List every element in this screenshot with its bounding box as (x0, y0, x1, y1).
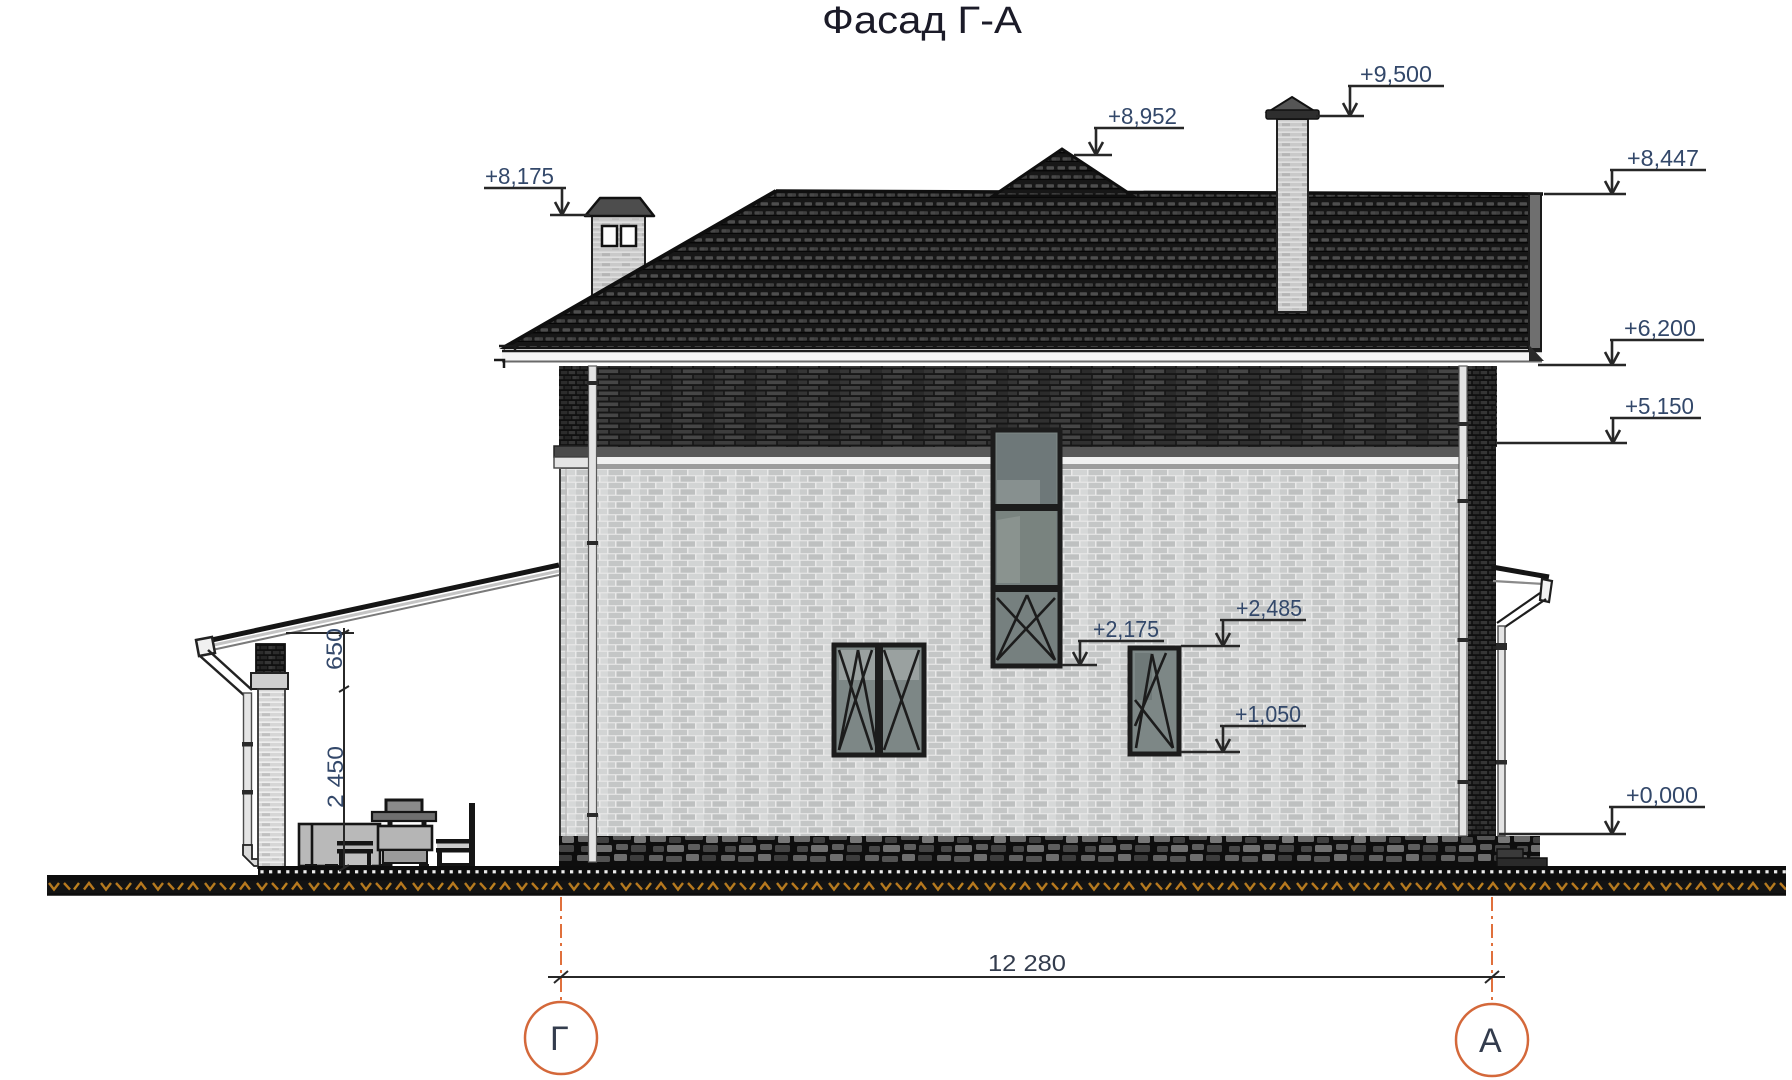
svg-text:+0,000: +0,000 (1626, 782, 1698, 808)
svg-text:+8,175: +8,175 (485, 163, 554, 189)
svg-text:+1,050: +1,050 (1235, 701, 1301, 727)
svg-text:Г: Г (550, 1020, 568, 1058)
svg-text:А: А (1479, 1022, 1502, 1060)
svg-text:+2,485: +2,485 (1236, 595, 1302, 621)
svg-text:+6,200: +6,200 (1624, 315, 1696, 341)
svg-text:Фасад Г-А: Фасад Г-А (822, 0, 1023, 42)
svg-text:+8,447: +8,447 (1627, 145, 1699, 171)
svg-text:2 450: 2 450 (323, 746, 348, 808)
svg-text:+9,500: +9,500 (1360, 61, 1432, 87)
svg-text:+5,150: +5,150 (1625, 393, 1694, 419)
svg-text:650: 650 (322, 628, 347, 670)
svg-text:+2,175: +2,175 (1093, 616, 1159, 642)
svg-text:12 280: 12 280 (988, 950, 1066, 976)
svg-text:+8,952: +8,952 (1108, 103, 1177, 129)
